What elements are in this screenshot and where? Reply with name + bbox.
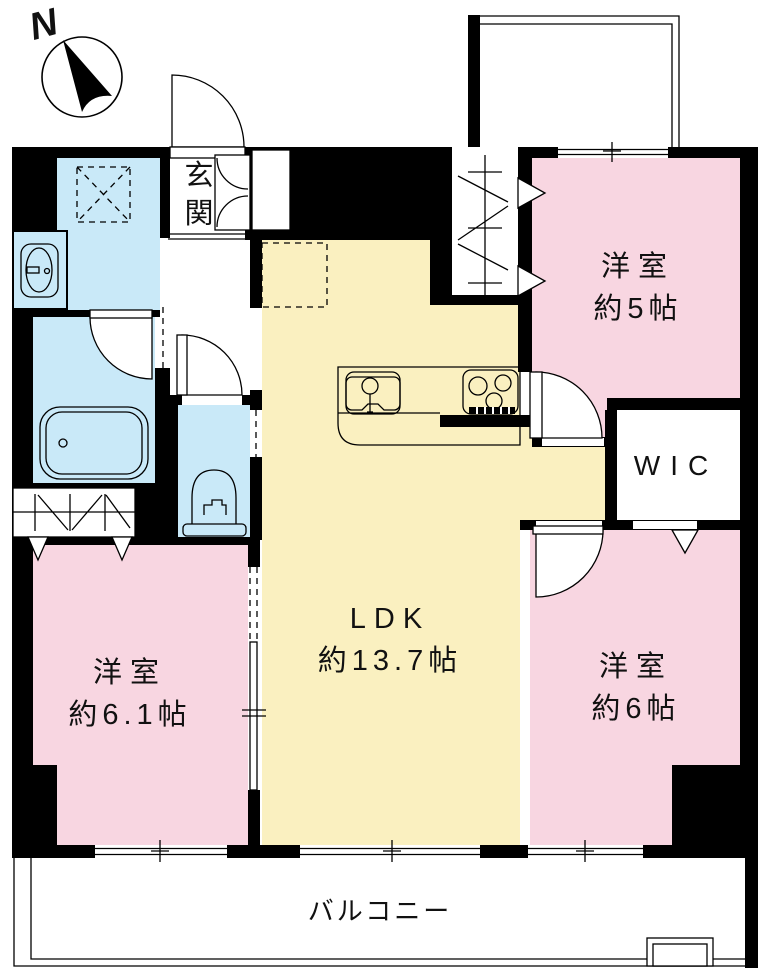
compass-icon (42, 37, 122, 117)
toilet-floor (178, 405, 250, 537)
floor-plan: N 玄関 洋室 約5帖 LDK 約13.7帖 洋室 約6.1帖 洋室 約6帖 W… (0, 0, 760, 976)
balcony-label: バルコニー (280, 891, 480, 928)
bedroom5-label: 洋室 約5帖 (538, 246, 738, 330)
washroom-floor (57, 158, 160, 310)
ldk-floor (520, 427, 532, 520)
toilet-door-swing (177, 335, 242, 395)
hallway-floor (532, 447, 605, 520)
room-name: 洋室 (536, 646, 736, 688)
ldk-floor (262, 240, 430, 845)
room-size: 約13.7帖 (290, 640, 490, 682)
washbasin-alcove (13, 231, 67, 309)
room-name: LDK (290, 598, 490, 640)
entrance-door-swing (170, 75, 245, 158)
genkan-step-line (168, 234, 248, 239)
room-name: 洋室 (538, 246, 738, 288)
ldk-label: LDK 約13.7帖 (290, 598, 490, 682)
bedroom61-label: 洋室 約6.1帖 (30, 652, 230, 736)
room-size: 約6帖 (536, 688, 736, 730)
genkan-closet-doors (215, 150, 290, 230)
room-size: 約5帖 (538, 288, 738, 330)
evacuation-hatch-icon (647, 938, 713, 966)
genkan-label: 玄関 (181, 157, 217, 233)
ldk-floor (430, 305, 520, 845)
floor-plan-drawing (0, 0, 760, 976)
room-size: 約6.1帖 (30, 694, 230, 736)
wic-label: WIC (612, 450, 740, 482)
bedroom6-label: 洋室 約6帖 (536, 646, 736, 730)
room-name: 洋室 (30, 652, 230, 694)
ldk-opening-dash (250, 410, 262, 457)
exterior-porch-outline (468, 16, 679, 147)
